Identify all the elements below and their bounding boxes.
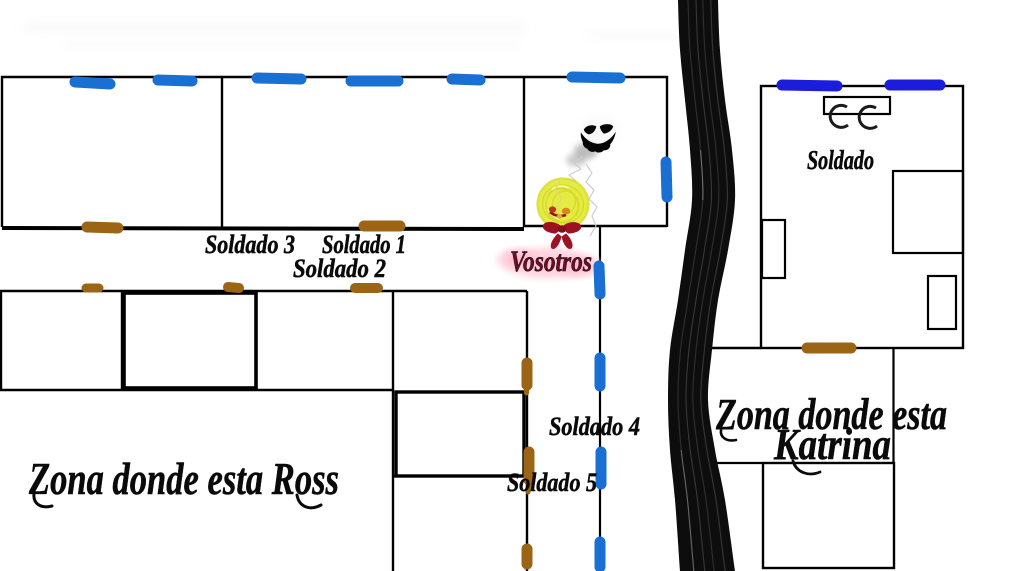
svg-text:Soldado 5: Soldado 5 [507,468,597,497]
svg-text:Soldado: Soldado [807,145,874,175]
svg-text:Katrina: Katrina [773,420,891,469]
svg-text:Soldado 2: Soldado 2 [293,254,386,283]
svg-text:Vosotros: Vosotros [510,245,592,278]
svg-text:Soldado 3: Soldado 3 [205,230,295,259]
svg-text:Zona donde esta Ross: Zona donde esta Ross [28,454,339,504]
svg-text:Soldado 4: Soldado 4 [549,412,640,441]
